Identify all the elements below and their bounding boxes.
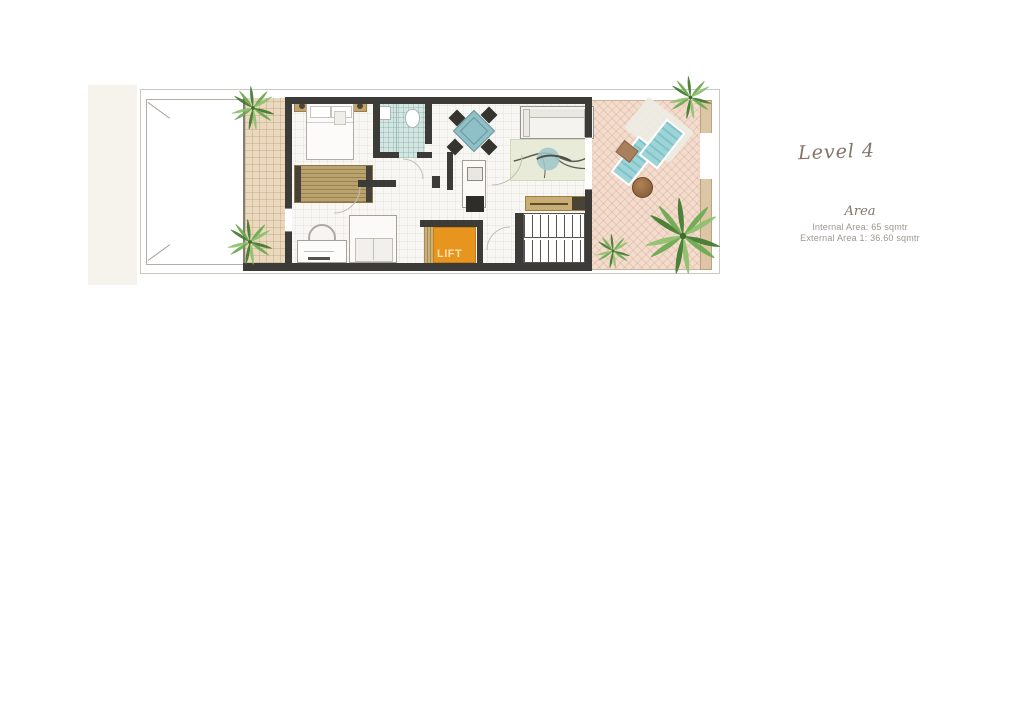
external-area-text: External Area 1: 36.60 sqmtr xyxy=(775,233,945,244)
wall xyxy=(373,97,380,158)
floor-plan-page: LIFT Level 4 Area Internal Area: xyxy=(0,0,1024,724)
wall xyxy=(417,152,432,158)
sofa xyxy=(520,106,594,139)
vanity-dresser xyxy=(297,240,347,263)
round-side-table xyxy=(632,177,653,198)
level-label: Level 4 xyxy=(798,138,929,165)
terrace-left xyxy=(243,98,287,263)
rug-pattern xyxy=(511,140,591,180)
lift: LIFT xyxy=(433,227,476,263)
terrace-opening xyxy=(700,133,712,179)
area-heading: Area xyxy=(775,204,945,219)
wall xyxy=(285,97,292,208)
wall xyxy=(285,97,592,104)
wall xyxy=(425,97,432,144)
wall xyxy=(373,152,399,158)
dining-set xyxy=(446,103,502,159)
area-annotation: Area Internal Area: 65 sqmtr External Ar… xyxy=(775,204,945,244)
wall xyxy=(420,220,483,227)
staircase xyxy=(523,213,585,263)
wall xyxy=(585,97,592,137)
lift-label: LIFT xyxy=(437,248,462,260)
wall xyxy=(477,220,483,265)
wall xyxy=(447,152,453,190)
sideboard xyxy=(525,196,587,211)
left-background-strip xyxy=(88,85,137,285)
toilet xyxy=(405,109,420,128)
wall xyxy=(585,190,592,270)
wall xyxy=(243,263,592,271)
window xyxy=(285,208,292,232)
internal-area-text: Internal Area: 65 sqmtr xyxy=(775,222,945,233)
rug xyxy=(510,139,592,181)
terrace-door xyxy=(585,137,592,190)
bed xyxy=(306,102,354,160)
shower-glass xyxy=(396,104,397,156)
loveseat-sofa xyxy=(349,215,397,263)
lift-door xyxy=(424,227,433,263)
wall xyxy=(358,180,396,187)
void-area xyxy=(146,99,247,265)
sink xyxy=(379,106,391,120)
wall xyxy=(515,213,523,265)
terrace-parapet xyxy=(700,100,712,270)
kitchen-appliance xyxy=(466,196,484,212)
wall xyxy=(432,176,440,188)
